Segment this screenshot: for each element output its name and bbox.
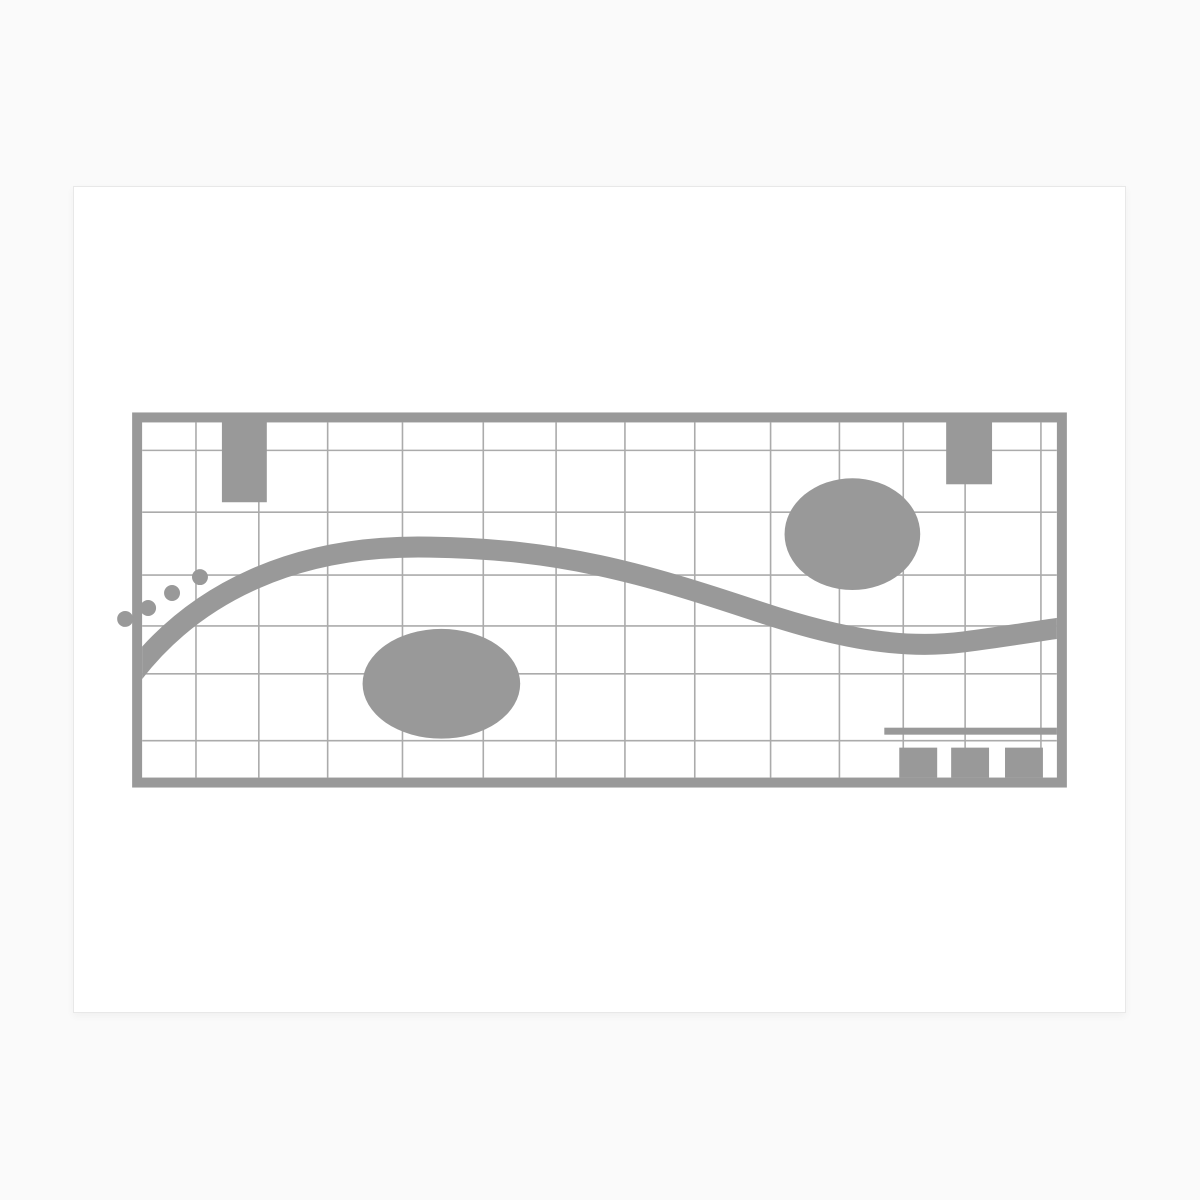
solid-ellipses bbox=[363, 478, 921, 738]
trail-dot bbox=[140, 600, 156, 616]
bottom-right-underline bbox=[884, 728, 1057, 735]
bottom-right-squares bbox=[899, 748, 1043, 778]
trail-dot bbox=[117, 611, 133, 627]
solid-ellipse bbox=[785, 478, 921, 590]
page-background bbox=[0, 0, 1200, 1200]
small-square bbox=[1005, 748, 1043, 778]
grid-lines bbox=[142, 422, 1057, 777]
top-tab-block bbox=[946, 414, 992, 484]
top-tab-block bbox=[222, 414, 267, 502]
solid-ellipse bbox=[363, 629, 521, 739]
small-square bbox=[951, 748, 989, 778]
abstract-wireframe-drawing bbox=[74, 187, 1125, 1012]
trail-dot bbox=[192, 569, 208, 585]
art-print-card bbox=[73, 186, 1126, 1013]
trail-dot bbox=[164, 585, 180, 601]
wave-curve-group bbox=[124, 547, 1061, 686]
wave-curve bbox=[124, 547, 1061, 686]
small-square bbox=[899, 748, 937, 778]
